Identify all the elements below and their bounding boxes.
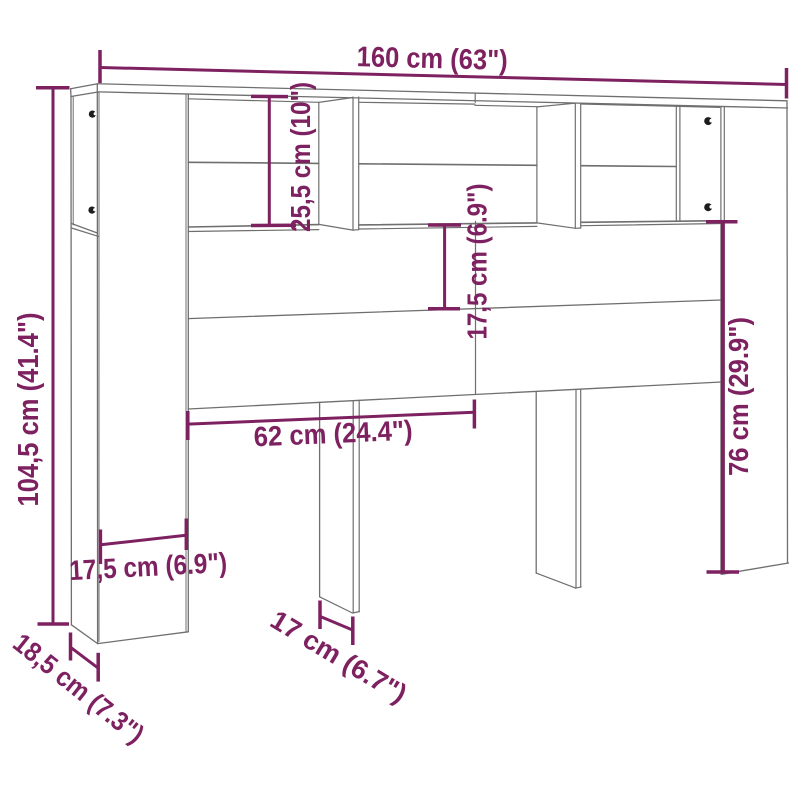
svg-text:76 cm (29.9"): 76 cm (29.9") <box>723 317 754 476</box>
svg-text:17,5 cm (6.9"): 17,5 cm (6.9") <box>461 184 492 340</box>
svg-text:160 cm (63"): 160 cm (63") <box>356 41 508 77</box>
svg-text:25,5 cm (10"): 25,5 cm (10") <box>285 82 316 232</box>
svg-text:104,5 cm (41.4"): 104,5 cm (41.4") <box>13 313 45 507</box>
